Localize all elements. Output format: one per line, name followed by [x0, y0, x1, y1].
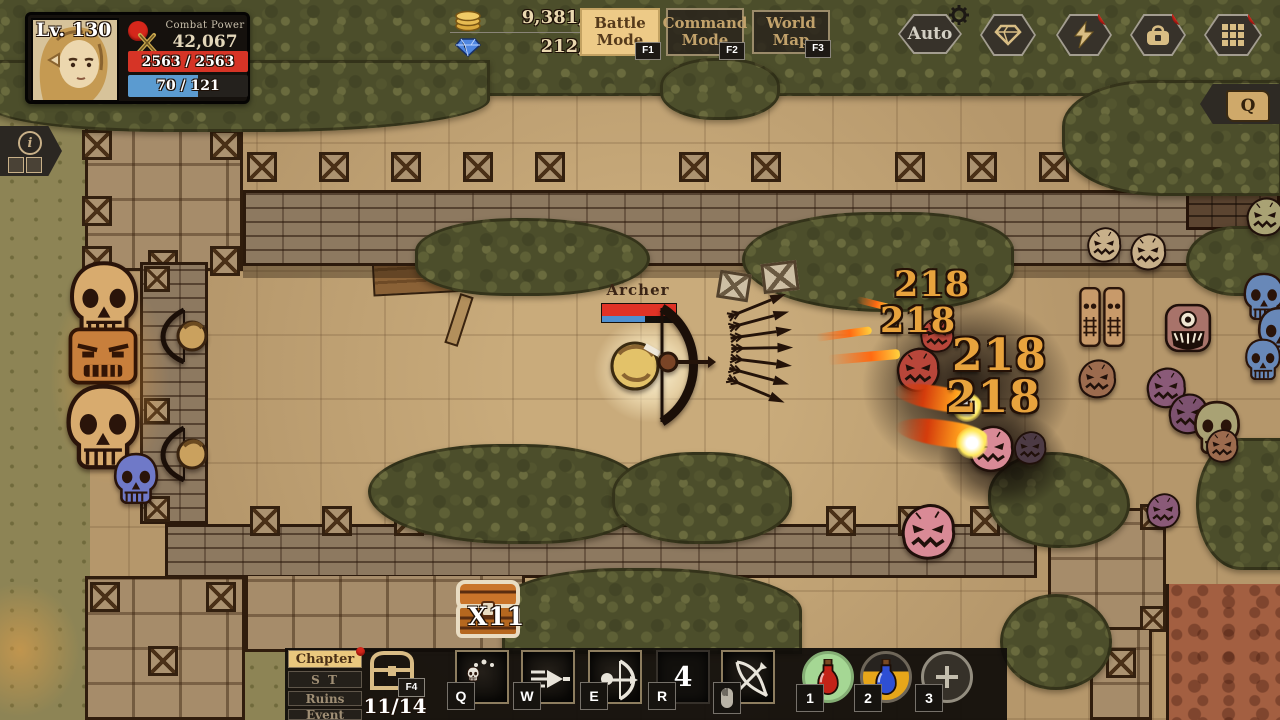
- auto-label: Auto: [908, 24, 953, 44]
- hotkey-badge: W: [513, 682, 541, 710]
- hotkey-badge: 3: [915, 684, 943, 712]
- skill-charge-count: 4: [674, 662, 693, 693]
- hotkey-badge: F2: [719, 42, 745, 60]
- tab-command-mode[interactable]: Command Mode F2: [666, 8, 744, 56]
- wall-pillar: [210, 130, 240, 160]
- zombie-head-sage: [1244, 196, 1280, 238]
- menu-label: S T: [311, 673, 339, 687]
- coins-icon: [454, 10, 482, 32]
- quest-tag[interactable]: Q: [1200, 84, 1280, 124]
- zombie-head-tan: [1128, 232, 1168, 272]
- hotkey-badge: 2: [854, 684, 882, 712]
- wall-pillar: [1140, 606, 1166, 632]
- chest-progress-count: 11/14: [360, 694, 430, 718]
- wall-pillar: [206, 582, 236, 612]
- combat-power-label: Combat Power: [162, 20, 248, 31]
- buff-icon: [26, 157, 42, 173]
- wall-pillar: [247, 152, 277, 182]
- damage-number: 218: [880, 300, 956, 341]
- menu-label: Chapter: [296, 652, 354, 667]
- info-icon: i: [18, 131, 42, 155]
- damage-number: 218: [894, 264, 970, 305]
- ally-archer-unit: [146, 306, 212, 364]
- zombie-head-tan: [1085, 226, 1123, 264]
- menu-label: Event: [306, 709, 344, 720]
- leaf-patch: [502, 568, 802, 654]
- mouse-left-badge: [713, 682, 741, 714]
- damage-number: 218: [946, 372, 1041, 423]
- gem-icon: [455, 37, 481, 57]
- wall-pillar: [322, 506, 352, 536]
- hotkey-badge: 1: [796, 684, 824, 712]
- wall-pillar: [90, 582, 120, 612]
- gear-icon[interactable]: [948, 4, 970, 26]
- hotkey-badge: F1: [635, 42, 661, 60]
- quest-scroll-icon: Q: [1226, 90, 1270, 122]
- cobble-patch: [1166, 584, 1280, 720]
- wall-pillar: [82, 196, 112, 226]
- archer-name-label: Archer: [600, 281, 676, 299]
- wall-pillar: [391, 152, 421, 182]
- menu-item-ruins[interactable]: Ruins: [288, 691, 362, 706]
- wall-pillar: [319, 152, 349, 182]
- zombie-head-pink: [896, 502, 960, 562]
- grid-icon: [1221, 23, 1245, 47]
- wall-pillar: [535, 152, 565, 182]
- mouse-icon: [720, 687, 734, 709]
- chest-count-label: X11: [468, 602, 525, 631]
- player-mp-text: 70 / 121: [156, 78, 220, 94]
- wall-pillar: [895, 152, 925, 182]
- lightning-icon: [1072, 21, 1096, 49]
- menu-item-st[interactable]: S T: [288, 671, 362, 688]
- hotkey-badge: E: [580, 682, 608, 710]
- crate: [716, 270, 752, 303]
- wall-pillar: [463, 152, 493, 182]
- archer-bow: [652, 300, 716, 430]
- leaf-patch: [660, 58, 780, 120]
- wall-pillar: [751, 152, 781, 182]
- zombie-head-brown: [1076, 358, 1118, 400]
- zombie-head-brown: [1204, 428, 1240, 464]
- player-level-label: Lv. 130: [36, 19, 111, 41]
- player-mp-bar: 70 / 121: [128, 75, 248, 97]
- wall-pillar: [82, 130, 112, 160]
- player-panel: Lv. 130 Combat Power 42,067 2563 / 2563 …: [25, 12, 250, 104]
- wall-pillar: [826, 506, 856, 536]
- blue-skull-icon: [1242, 338, 1280, 380]
- menu-item-chapter[interactable]: Chapter: [288, 650, 362, 668]
- archer-mp-fill: [602, 316, 645, 322]
- chest-progress-button[interactable]: F4 11/14: [360, 650, 430, 720]
- totem-head: [1102, 278, 1126, 356]
- game-screen: Archer: [0, 0, 1280, 720]
- menu-label: Ruins: [306, 692, 345, 706]
- ally-archer-unit: [146, 424, 212, 482]
- player-hp-bar: 2563 / 2563: [128, 51, 248, 72]
- wall-pillar: [967, 152, 997, 182]
- totem-head: [1078, 278, 1102, 356]
- bag-icon: [1145, 23, 1171, 47]
- golem-head-icon: [66, 326, 140, 386]
- hotkey-badge: R: [648, 682, 676, 710]
- zombie-head-purple: [1144, 492, 1182, 530]
- gem-outline-icon: [994, 24, 1022, 46]
- flaming-arrow-head: [956, 427, 988, 459]
- hotkey-badge: F3: [805, 40, 831, 58]
- wall-pillar: [148, 646, 178, 676]
- leaf-patch: [1000, 594, 1112, 690]
- tab-world-map[interactable]: World Map F3: [752, 10, 830, 54]
- buff-icon: [8, 157, 24, 173]
- wall-pillar: [679, 152, 709, 182]
- combat-power-value: 42,067: [162, 32, 248, 52]
- cyclops-head: [1162, 302, 1214, 354]
- wall-pillar: [210, 246, 240, 276]
- menu-item-event[interactable]: Event: [288, 709, 362, 720]
- tab-battle-mode[interactable]: Battle Mode F1: [580, 8, 660, 56]
- zombie-head-dark: [1012, 430, 1048, 466]
- leaf-patch: [612, 452, 792, 544]
- wall-pillar: [250, 506, 280, 536]
- hotkey-badge: Q: [447, 682, 475, 710]
